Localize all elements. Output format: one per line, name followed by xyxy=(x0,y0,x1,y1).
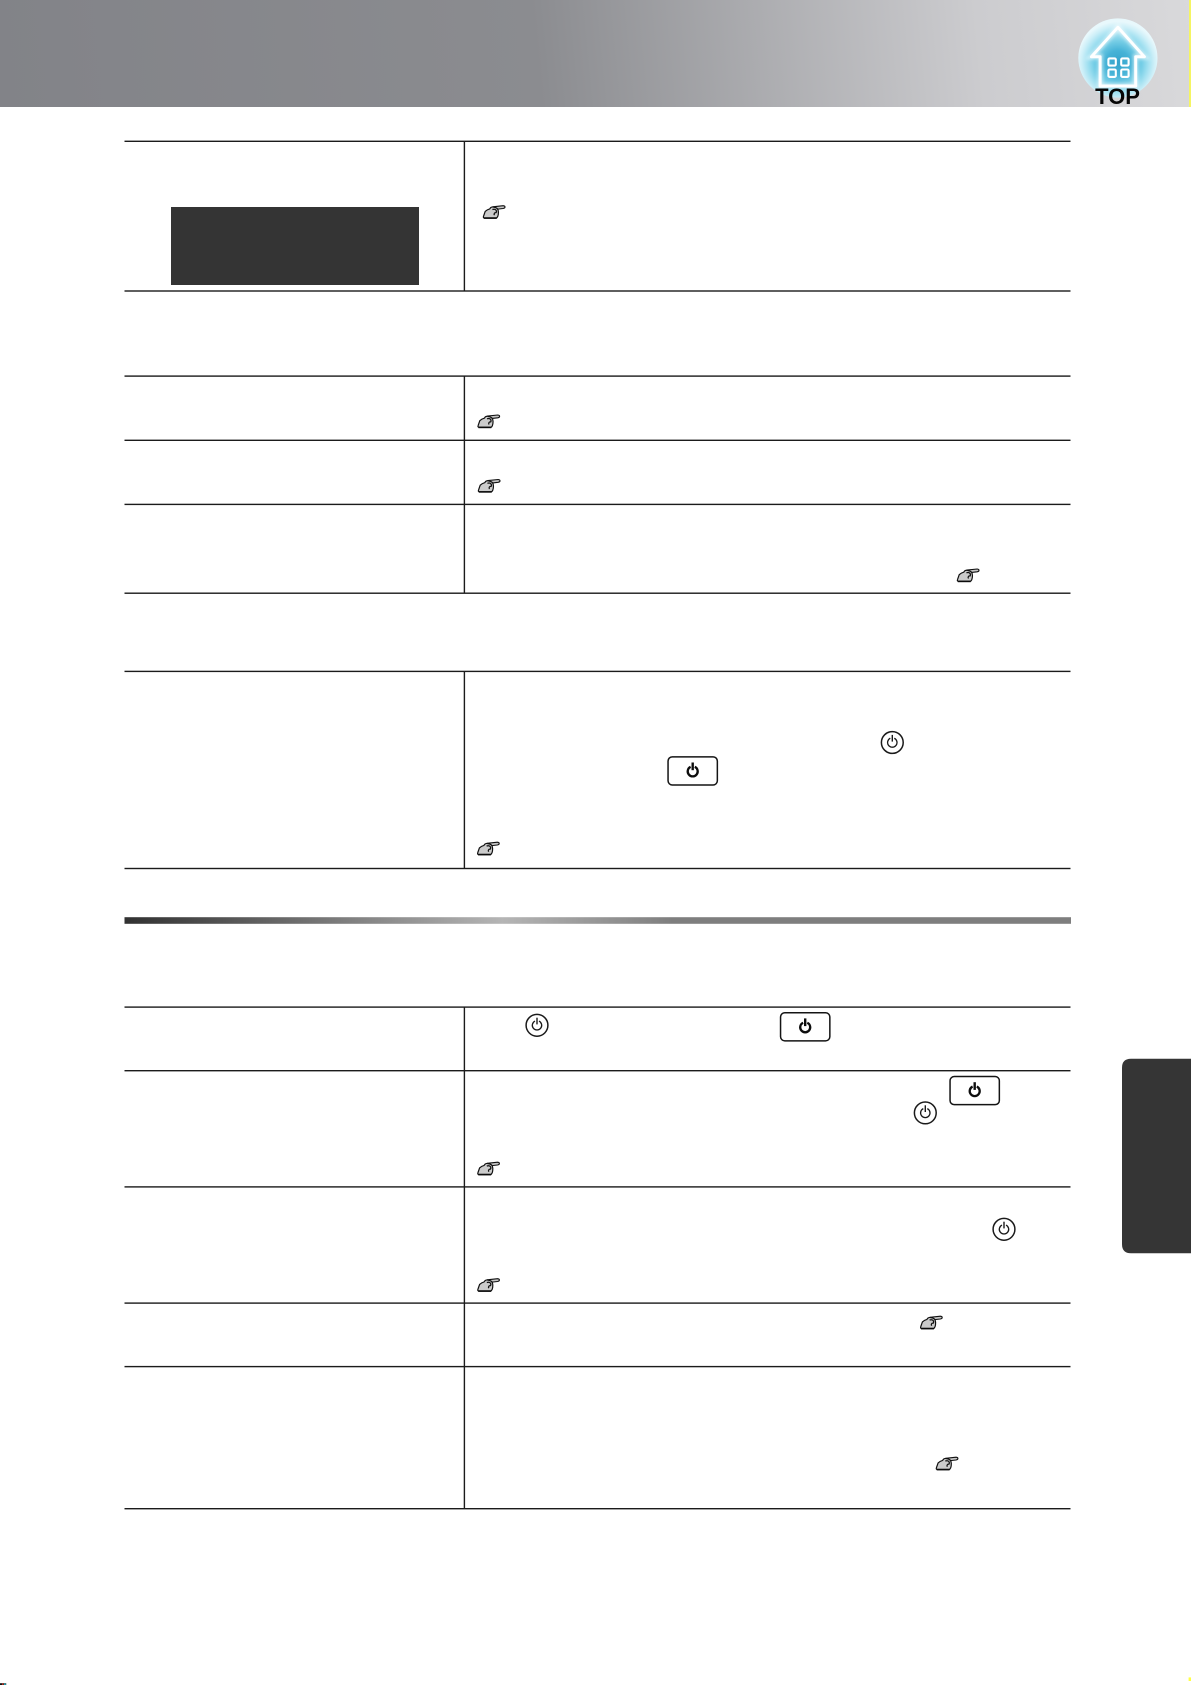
svg-text:TOP: TOP xyxy=(1095,84,1140,109)
